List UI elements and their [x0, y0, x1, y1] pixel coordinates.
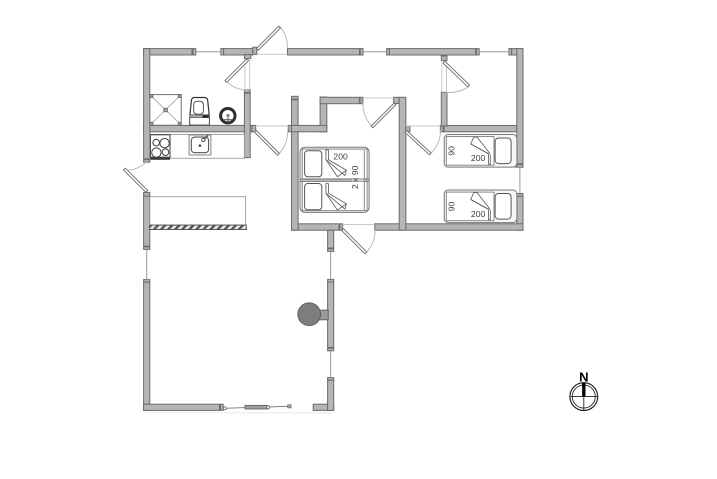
svg-text:90: 90 — [447, 202, 457, 212]
svg-text:N: N — [579, 370, 588, 385]
svg-text:2 x 90: 2 x 90 — [350, 165, 360, 189]
svg-text:200: 200 — [471, 153, 486, 163]
svg-text:90: 90 — [447, 146, 457, 156]
svg-text:200: 200 — [333, 152, 348, 162]
svg-text:200: 200 — [471, 209, 486, 219]
